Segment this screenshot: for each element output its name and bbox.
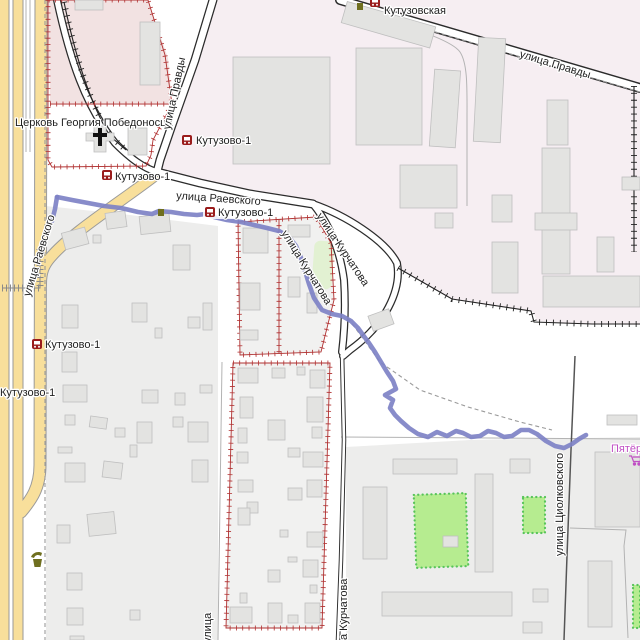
building bbox=[130, 445, 137, 457]
building bbox=[305, 603, 320, 623]
building bbox=[58, 447, 72, 453]
building bbox=[137, 422, 152, 443]
street-label-ulitsa-partial: улица bbox=[202, 612, 214, 640]
building bbox=[597, 237, 614, 272]
building bbox=[473, 37, 505, 142]
building bbox=[523, 622, 542, 633]
building bbox=[303, 560, 318, 577]
building bbox=[67, 608, 83, 625]
building bbox=[89, 416, 107, 429]
building bbox=[356, 48, 422, 145]
building bbox=[130, 610, 140, 620]
building bbox=[188, 317, 200, 328]
building bbox=[115, 428, 125, 437]
building bbox=[400, 165, 457, 208]
map-viewport[interactable]: Церковь Георгия Победоносца Кутузово-1 К… bbox=[0, 0, 640, 640]
building bbox=[268, 420, 285, 440]
building bbox=[63, 385, 87, 402]
building bbox=[307, 480, 322, 497]
building bbox=[243, 228, 268, 253]
building bbox=[67, 573, 82, 590]
building bbox=[65, 415, 75, 425]
transit-stop-icon[interactable] bbox=[102, 170, 112, 180]
street-label-tsiolkovskogo: улица Циолковского bbox=[554, 453, 566, 556]
building bbox=[607, 415, 637, 425]
building bbox=[535, 213, 577, 230]
building bbox=[268, 603, 282, 623]
transit-stop-icon[interactable] bbox=[205, 207, 215, 217]
building bbox=[303, 452, 323, 467]
amenity-icon[interactable] bbox=[357, 3, 363, 10]
building bbox=[382, 592, 512, 616]
stop-label-kutuzovo1: Кутузово-1 bbox=[0, 387, 55, 399]
building bbox=[233, 57, 330, 164]
street-label-kurchatova-partial: а Курчатова bbox=[338, 578, 350, 640]
building bbox=[93, 235, 101, 243]
building bbox=[65, 463, 85, 482]
transit-stop-icon[interactable] bbox=[182, 135, 192, 145]
poi-label-church: Церковь Георгия Победоносца bbox=[15, 117, 173, 129]
building bbox=[288, 448, 300, 457]
building bbox=[307, 397, 323, 422]
building bbox=[102, 461, 123, 479]
building bbox=[368, 309, 394, 332]
service-road bbox=[218, 362, 222, 640]
building bbox=[240, 593, 247, 603]
building bbox=[312, 427, 322, 438]
building bbox=[128, 128, 147, 155]
building bbox=[533, 589, 548, 602]
building bbox=[173, 417, 183, 427]
building bbox=[75, 0, 103, 10]
building bbox=[139, 213, 171, 234]
transit-stop-icon[interactable] bbox=[370, 0, 380, 7]
building bbox=[240, 330, 258, 340]
building bbox=[542, 148, 570, 274]
building bbox=[288, 277, 300, 297]
building bbox=[240, 283, 260, 310]
building bbox=[62, 352, 77, 372]
building bbox=[238, 508, 250, 525]
building bbox=[622, 177, 640, 190]
building bbox=[188, 422, 208, 442]
building bbox=[288, 557, 297, 562]
building bbox=[238, 368, 258, 383]
building bbox=[155, 328, 162, 338]
building bbox=[230, 607, 252, 623]
building bbox=[132, 303, 147, 322]
building bbox=[238, 480, 253, 492]
building bbox=[363, 487, 387, 559]
building bbox=[237, 452, 248, 463]
stop-label-kutuzovo1: Кутузово-1 bbox=[45, 339, 100, 351]
building bbox=[492, 195, 512, 222]
building bbox=[492, 242, 518, 293]
building bbox=[588, 561, 612, 627]
building bbox=[510, 459, 530, 473]
playground bbox=[523, 497, 545, 533]
building bbox=[393, 459, 457, 474]
stop-label-kutuzovo1: Кутузово-1 bbox=[196, 135, 251, 147]
playground bbox=[414, 493, 469, 568]
building bbox=[547, 100, 568, 145]
building bbox=[203, 303, 212, 330]
building bbox=[429, 69, 460, 148]
building bbox=[238, 428, 247, 443]
building bbox=[288, 488, 302, 500]
building bbox=[105, 211, 127, 230]
footpath bbox=[348, 318, 552, 430]
building bbox=[310, 370, 325, 388]
building bbox=[175, 393, 185, 405]
stop-label-kutuzovo1: Кутузово-1 bbox=[218, 207, 273, 219]
water-tap-icon[interactable] bbox=[31, 552, 42, 567]
playground bbox=[633, 585, 640, 628]
building bbox=[192, 460, 208, 482]
stop-label-kutuzovskaya: Кутузовская bbox=[384, 5, 446, 17]
building bbox=[200, 385, 212, 393]
building bbox=[307, 532, 323, 547]
building bbox=[268, 570, 280, 582]
transit-stop-icon[interactable] bbox=[32, 339, 42, 349]
building bbox=[475, 474, 493, 572]
building bbox=[543, 276, 640, 307]
building bbox=[57, 525, 70, 543]
poi-label-supermarket: Пятёр bbox=[611, 443, 640, 455]
building bbox=[435, 213, 453, 228]
building bbox=[240, 397, 253, 418]
building bbox=[310, 585, 317, 593]
building bbox=[288, 615, 298, 623]
building bbox=[173, 245, 190, 270]
building bbox=[140, 22, 160, 85]
building bbox=[142, 390, 158, 403]
map-canvas[interactable]: Церковь Георгия Победоносца Кутузово-1 К… bbox=[0, 0, 640, 640]
amenity-icon[interactable] bbox=[158, 209, 164, 216]
building bbox=[272, 368, 285, 378]
building bbox=[70, 636, 84, 640]
building bbox=[443, 536, 458, 547]
stop-label-kutuzovo1: Кутузово-1 bbox=[115, 171, 170, 183]
building bbox=[62, 305, 78, 328]
building bbox=[87, 512, 116, 537]
building bbox=[280, 530, 288, 537]
building bbox=[297, 367, 305, 375]
